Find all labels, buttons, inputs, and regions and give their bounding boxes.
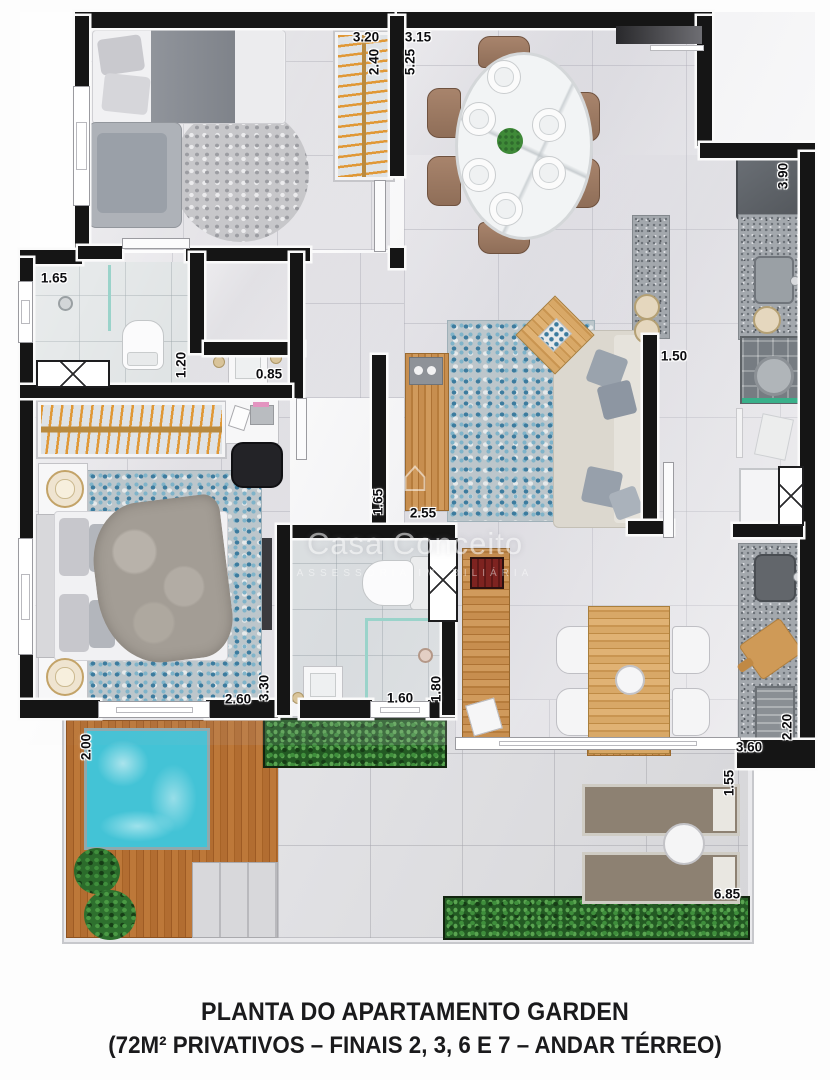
dimension-label: 2.55 xyxy=(410,506,436,520)
entrance-door-handle xyxy=(650,45,704,51)
cushion-pillow xyxy=(97,133,167,213)
kitchen-sink xyxy=(754,256,794,304)
wall xyxy=(75,12,397,28)
dimension-label: 6.85 xyxy=(714,887,740,901)
wall xyxy=(700,143,815,158)
pool xyxy=(84,728,210,850)
printer-paper xyxy=(253,402,269,407)
window xyxy=(73,86,90,206)
counter-stool xyxy=(753,306,781,334)
green-shelf xyxy=(742,398,800,403)
tv-console-top xyxy=(409,357,443,385)
tray-decor xyxy=(538,318,572,352)
sideboard xyxy=(462,548,510,740)
door-leaf xyxy=(663,462,674,538)
hedge-planter xyxy=(263,718,447,768)
door-leaf xyxy=(122,238,190,249)
dimension-label: 0.85 xyxy=(256,367,282,381)
potted-plant xyxy=(84,890,136,940)
console-knob xyxy=(427,366,436,375)
wall xyxy=(390,248,404,268)
basin-bowl xyxy=(310,673,336,697)
door-leaf xyxy=(374,180,386,252)
hangers xyxy=(41,405,222,454)
towel-bar xyxy=(736,408,743,458)
single-bed xyxy=(92,30,286,124)
shower-glass xyxy=(108,265,111,331)
dimension-label: 2.40 xyxy=(367,49,381,75)
table-lamp xyxy=(46,470,84,508)
soap-dish xyxy=(213,356,225,368)
decor-box xyxy=(470,557,504,589)
patio-sliding-door xyxy=(455,737,741,750)
plate xyxy=(487,60,521,94)
island-stool xyxy=(634,294,660,320)
dimension-label: 3.15 xyxy=(405,30,431,44)
desk xyxy=(225,398,279,444)
notepad xyxy=(465,697,503,736)
dimension-label: 2.00 xyxy=(79,734,93,760)
wall xyxy=(20,700,100,718)
toilet xyxy=(362,560,414,606)
dimension-label: 3.20 xyxy=(353,30,379,44)
window xyxy=(18,281,33,343)
dimension-label: 1.60 xyxy=(387,691,413,705)
cooktop xyxy=(740,336,804,404)
lavatory-floor xyxy=(204,255,290,345)
pillow xyxy=(97,34,146,76)
deck-steps xyxy=(192,862,278,938)
round-rug xyxy=(172,105,309,242)
plate xyxy=(532,108,566,142)
window xyxy=(18,538,33,655)
wall xyxy=(300,700,372,718)
toilet-tank xyxy=(127,352,158,366)
pillow xyxy=(101,73,151,116)
toilet xyxy=(122,320,164,370)
office-chair xyxy=(231,442,283,488)
faucet xyxy=(790,276,800,286)
wall xyxy=(277,525,290,715)
wall-tv-panel xyxy=(262,538,272,630)
dimension-label: 3.90 xyxy=(776,163,790,189)
garden-chair xyxy=(672,626,710,674)
potted-plant xyxy=(74,848,120,894)
plate xyxy=(532,156,566,190)
entrance-door xyxy=(616,26,702,44)
floor-cushion xyxy=(88,122,182,228)
table-bowl xyxy=(615,665,645,695)
dimension-label: 3.60 xyxy=(736,740,762,754)
table-plant xyxy=(497,128,523,154)
bathroom2-door xyxy=(428,538,458,622)
plate xyxy=(462,158,496,192)
dimension-label: 1.80 xyxy=(429,676,443,702)
sun-lounger xyxy=(582,784,740,836)
blanket xyxy=(151,30,235,123)
shower-head xyxy=(418,648,433,663)
garden-chair xyxy=(672,688,710,736)
pillow xyxy=(59,594,89,652)
outdoor-side-table xyxy=(663,823,705,865)
tv-rack xyxy=(405,353,449,511)
wall xyxy=(643,335,657,527)
shower-box xyxy=(36,360,110,388)
dimension-label: 1.20 xyxy=(174,352,188,378)
wall xyxy=(204,342,304,355)
pillow xyxy=(59,518,89,576)
shower-head xyxy=(58,296,73,311)
plan-caption: PLANTA DO APARTAMENTO GARDEN (72M² PRIVA… xyxy=(0,998,830,1060)
wall xyxy=(290,253,303,398)
pot xyxy=(754,356,794,396)
dimension-label: 3.30 xyxy=(257,675,271,701)
caption-line2: (72M² PRIVATIVOS – FINAIS 2, 3, 6 E 7 – … xyxy=(29,1032,801,1060)
wall xyxy=(190,253,204,353)
wood-dining-table xyxy=(588,606,670,754)
wall xyxy=(800,152,815,768)
oval-dining-table xyxy=(455,52,593,240)
refrigerator xyxy=(736,156,800,220)
hangers xyxy=(338,35,390,177)
caption-line1: PLANTA DO APARTAMENTO GARDEN xyxy=(29,998,801,1027)
closet-wardrobe xyxy=(333,30,395,182)
washbasin xyxy=(303,666,343,704)
door-leaf xyxy=(296,398,307,460)
laptop xyxy=(228,405,251,431)
table-lamp xyxy=(46,658,84,696)
dimension-label: 1.55 xyxy=(722,770,736,796)
closet-wardrobe xyxy=(36,400,227,459)
wall xyxy=(390,16,404,176)
dimension-label: 1.65 xyxy=(41,271,67,285)
sliding-door xyxy=(98,701,210,718)
shower-glass xyxy=(365,618,368,700)
printer xyxy=(250,405,274,425)
dimension-label: 1.65 xyxy=(371,489,385,515)
dimension-label: 1.50 xyxy=(661,349,687,363)
wall xyxy=(290,525,455,538)
console-knob xyxy=(414,366,423,375)
plate xyxy=(462,102,496,136)
plate xyxy=(489,192,523,226)
wall xyxy=(442,612,455,715)
service-door xyxy=(778,466,804,526)
floor-plan-sheet: 3.20 2.40 3.15 5.25 3.90 1.65 1.20 0.85 … xyxy=(0,0,830,1080)
bed-throw xyxy=(235,30,284,123)
dimension-label: 5.25 xyxy=(403,49,417,75)
dimension-label: 2.20 xyxy=(780,714,794,740)
dimension-label: 2.60 xyxy=(225,692,251,706)
wall xyxy=(78,246,122,259)
service-sink xyxy=(754,554,796,602)
